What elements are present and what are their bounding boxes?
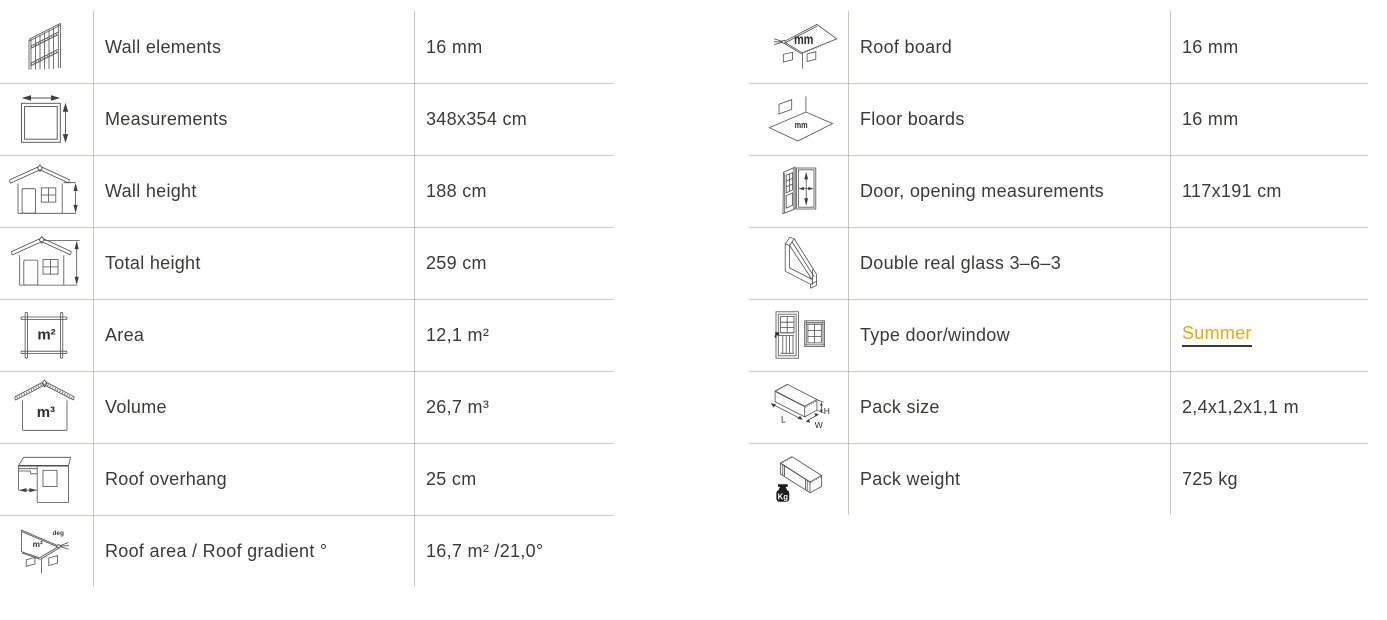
svg-text:m²: m²: [37, 327, 55, 344]
svg-text:L: L: [781, 415, 786, 425]
svg-text:m³: m³: [37, 404, 55, 421]
svg-text:deg: deg: [53, 530, 64, 537]
svg-text:W: W: [815, 420, 823, 430]
svg-text:mm: mm: [794, 32, 814, 47]
svg-text:Kg: Kg: [778, 492, 789, 501]
svg-text:H: H: [824, 406, 830, 416]
svg-text:m²: m²: [33, 539, 43, 549]
svg-text:mm: mm: [795, 120, 808, 130]
